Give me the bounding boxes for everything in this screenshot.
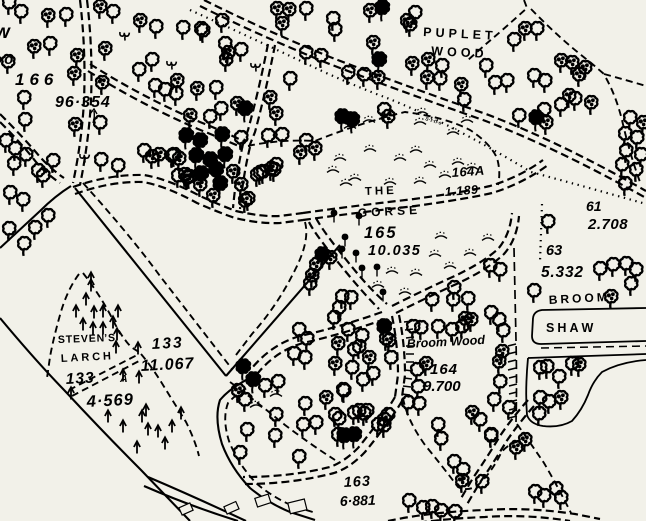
svg-text:6·881: 6·881 <box>340 492 377 509</box>
svg-text:163: 163 <box>343 474 371 491</box>
svg-text:166: 166 <box>15 70 58 89</box>
svg-text:165: 165 <box>364 224 398 242</box>
svg-text:164A: 164A <box>451 163 485 180</box>
svg-text:S T E V E N’ S: S T E V E N’ S <box>58 332 116 346</box>
svg-text:164: 164 <box>430 361 458 378</box>
svg-text:2.708: 2.708 <box>587 216 628 233</box>
svg-text:10.035: 10.035 <box>368 243 421 259</box>
svg-text:61: 61 <box>586 198 602 214</box>
svg-text:5.332: 5.332 <box>541 264 584 281</box>
svg-text:4·569: 4·569 <box>85 391 134 411</box>
svg-text:T H E: T H E <box>365 185 395 198</box>
svg-text:63: 63 <box>546 243 562 259</box>
svg-text:133: 133 <box>151 334 184 353</box>
svg-text:A: A <box>119 373 128 385</box>
svg-text:11.067: 11.067 <box>140 355 195 375</box>
svg-text:133: 133 <box>65 370 95 388</box>
svg-text:9.700: 9.700 <box>423 378 461 395</box>
svg-text:S H A W: S H A W <box>546 321 594 335</box>
svg-text:1.189: 1.189 <box>444 183 479 199</box>
svg-text:96·354: 96·354 <box>55 94 111 111</box>
svg-text:W O O D: W O O D <box>431 44 486 61</box>
svg-text:oo: oo <box>0 51 15 68</box>
svg-text:w: w <box>0 22 11 43</box>
